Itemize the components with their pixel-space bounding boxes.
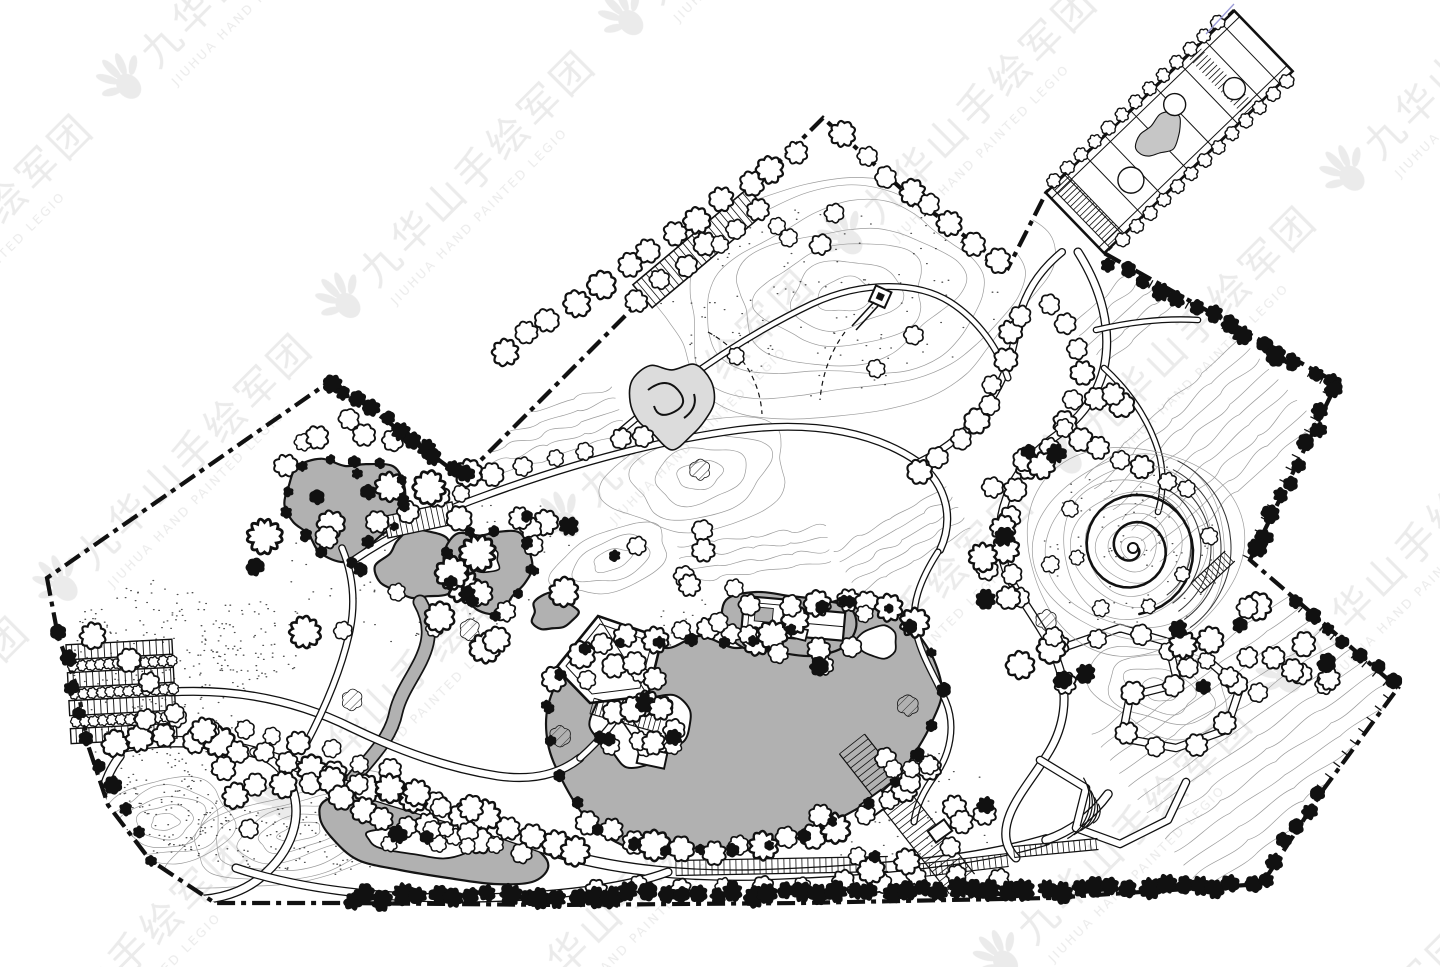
tree-symbol bbox=[366, 511, 388, 532]
tree-symbol bbox=[902, 760, 919, 777]
tree-symbol bbox=[486, 836, 503, 853]
tree-symbol bbox=[1197, 627, 1223, 654]
hedge-bump bbox=[168, 683, 179, 695]
tree-symbol bbox=[1067, 338, 1087, 359]
tree-symbol bbox=[338, 409, 358, 430]
tree-symbol bbox=[1004, 478, 1026, 501]
tree-symbol bbox=[1237, 647, 1257, 668]
tree-symbol bbox=[458, 795, 483, 822]
tree-symbol bbox=[388, 583, 405, 601]
tree-symbol bbox=[884, 760, 902, 778]
tree-symbol bbox=[936, 211, 961, 236]
tree-symbol bbox=[587, 271, 616, 299]
tree-symbol bbox=[780, 595, 801, 617]
tree-symbol bbox=[756, 156, 783, 184]
tree-symbol bbox=[80, 622, 106, 649]
tree-symbol bbox=[840, 637, 861, 658]
tree-symbol bbox=[1146, 737, 1165, 757]
tree-symbol bbox=[425, 602, 454, 633]
tree-symbol bbox=[1177, 657, 1198, 677]
tree-symbol bbox=[235, 720, 254, 739]
tree-symbol bbox=[676, 255, 697, 277]
tree-symbol bbox=[247, 519, 282, 554]
master-plan-page: 九华山手绘军团 JIUHUA HAND PAINTED LEGIO bbox=[0, 0, 1440, 967]
hill-tree bbox=[1141, 599, 1155, 614]
master-plan-canvas: 九华山手绘军团 JIUHUA HAND PAINTED LEGIO bbox=[0, 0, 1440, 967]
tree-symbol bbox=[1055, 313, 1076, 334]
tree-symbol bbox=[263, 727, 280, 744]
tree-symbol bbox=[829, 121, 855, 147]
tree-symbol bbox=[1178, 480, 1195, 497]
tree-symbol bbox=[549, 577, 578, 607]
tree-symbol bbox=[1219, 667, 1239, 687]
tree-symbol bbox=[164, 703, 183, 722]
tree-symbol bbox=[824, 204, 843, 223]
tree-symbol bbox=[1043, 627, 1062, 646]
tree-symbol bbox=[969, 543, 997, 572]
tree-symbol bbox=[459, 838, 474, 854]
tree-symbol bbox=[709, 612, 728, 632]
tree-symbol bbox=[1158, 472, 1176, 490]
tree-symbol bbox=[627, 536, 646, 555]
tree-symbol bbox=[376, 774, 404, 803]
tree-symbol bbox=[316, 527, 338, 549]
tree-symbol bbox=[563, 290, 590, 317]
tree-symbol bbox=[1006, 651, 1034, 679]
tree-symbol bbox=[649, 269, 669, 289]
tree-symbol bbox=[190, 718, 216, 744]
tree-symbol bbox=[561, 836, 590, 866]
tree-symbol bbox=[547, 450, 563, 467]
tree-symbol bbox=[726, 219, 746, 239]
tree-symbol bbox=[725, 579, 743, 597]
tree-symbol bbox=[492, 339, 519, 366]
tree-symbol bbox=[254, 742, 274, 762]
tree-symbol bbox=[350, 755, 368, 773]
tree-symbol bbox=[1110, 451, 1129, 470]
tree-symbol bbox=[353, 424, 375, 446]
tree-symbol bbox=[727, 348, 744, 365]
spiral-center bbox=[1128, 543, 1138, 553]
tree-symbol bbox=[1088, 629, 1106, 648]
tree-symbol bbox=[857, 857, 884, 883]
